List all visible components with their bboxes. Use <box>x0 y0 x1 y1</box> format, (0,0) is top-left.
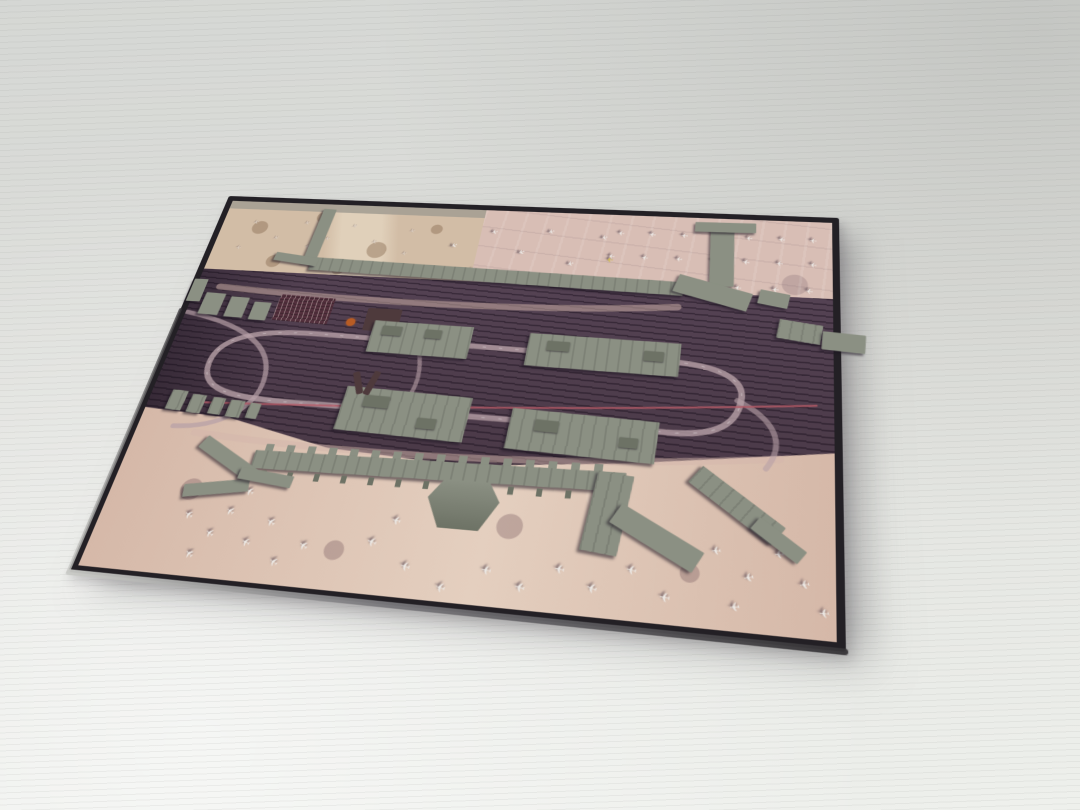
photo-scene: ✈✈✈✈✈✈✈✈✈✈✈✈✈✈✈✈✈✈✈✈✈✈✈✈✈✈✈✈✈✈✈✈✈✈✈✈✈✈✈✈… <box>0 0 1080 810</box>
rooftop-unit <box>533 419 559 433</box>
support-building <box>206 397 226 415</box>
upper-terminal-east-pier-head <box>695 222 756 233</box>
east-edge-protrusion <box>821 331 866 354</box>
lower-terminal-east-wedge <box>609 503 704 573</box>
upper-terminal-east-pier <box>709 225 734 287</box>
parking-lot-maroon <box>271 294 336 325</box>
support-building <box>224 399 246 418</box>
rooftop-unit <box>618 437 639 449</box>
support-building <box>244 402 262 419</box>
rooftop-unit <box>546 341 571 352</box>
rooftop-unit <box>643 351 664 362</box>
rooftop-unit <box>415 417 437 429</box>
west-block-b <box>223 296 250 318</box>
garage-southwest <box>333 386 473 443</box>
support-building <box>185 394 208 414</box>
east-block-a <box>757 289 791 309</box>
upper-terminal-main <box>308 257 685 296</box>
garage-southeast <box>503 408 660 465</box>
west-block-c <box>248 301 272 320</box>
rooftop-unit <box>381 325 404 336</box>
east-block-b <box>776 319 824 345</box>
rooftop-unit <box>362 395 391 409</box>
lower-terminal-west-pier-b <box>182 479 250 497</box>
orange-structure <box>345 318 356 326</box>
garage-northwest <box>365 320 474 359</box>
rooftop-unit <box>424 329 443 339</box>
